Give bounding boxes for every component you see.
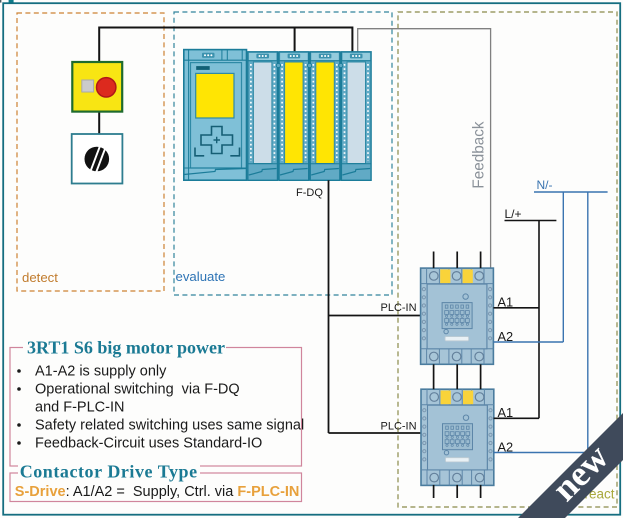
svg-text:Safety related switching uses: Safety related switching uses same signa… xyxy=(35,418,304,434)
svg-text:detect: detect xyxy=(22,270,58,285)
svg-text:3RT1 S6 big motor power: 3RT1 S6 big motor power xyxy=(27,338,225,358)
svg-text:Operational switching via F-D: Operational switching via F-DQ xyxy=(35,382,240,398)
svg-text:L/+: L/+ xyxy=(505,207,522,221)
svg-text:Contactor Drive Type: Contactor Drive Type xyxy=(20,462,198,482)
svg-text:A1-A2 is supply only: A1-A2 is supply only xyxy=(35,364,167,380)
svg-text:evaluate: evaluate xyxy=(176,269,226,284)
svg-text:F-DQ: F-DQ xyxy=(296,187,323,199)
svg-text:and F-PLC-IN: and F-PLC-IN xyxy=(35,400,124,416)
svg-text:PLC-IN: PLC-IN xyxy=(381,302,417,314)
svg-text:Feedback-Circuit uses Standard: Feedback-Circuit uses Standard-IO xyxy=(35,436,262,452)
svg-text:S-Drive: A1/A2 = Supply, Ctrl: S-Drive: A1/A2 = Supply, Ctrl. via F-PLC… xyxy=(15,484,300,500)
svg-text:N/-: N/- xyxy=(537,178,553,192)
svg-text:Feedback: Feedback xyxy=(470,121,487,189)
svg-text:PLC-IN: PLC-IN xyxy=(381,421,417,433)
